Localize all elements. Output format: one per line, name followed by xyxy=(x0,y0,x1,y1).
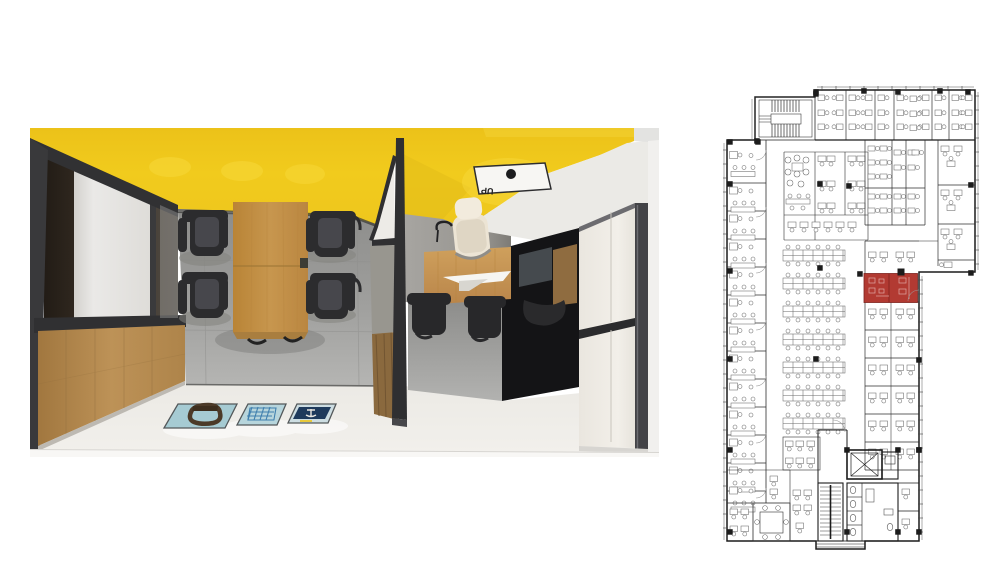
svg-text:UP: UP xyxy=(481,185,494,196)
